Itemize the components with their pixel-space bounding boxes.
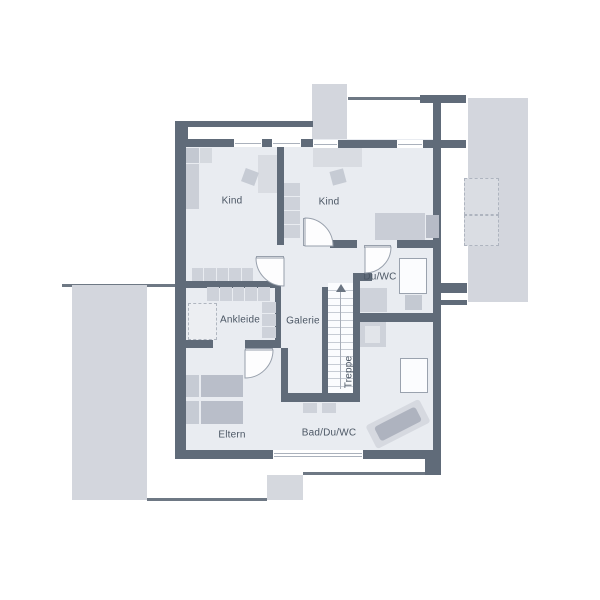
wall-divider-kids [277, 147, 284, 245]
stair-direction-arrow-icon [336, 284, 346, 292]
eltern-bed-pillow-2 [186, 401, 199, 424]
ankleide-closet-row-cell [245, 287, 257, 301]
ankleide-closet-row-cell [220, 287, 232, 301]
bad-washbasin-2 [322, 403, 336, 413]
kind1-wardrobe-top-a [186, 148, 199, 163]
kind1-closet-row-cell [229, 268, 240, 281]
stair-walkline [340, 291, 341, 389]
eltern-bed-mattress-1 [201, 375, 243, 397]
dashed-box-upper [464, 178, 499, 215]
wall-right-upper [433, 103, 441, 141]
kind2-bed-pillow [426, 215, 439, 238]
room-label-duwc: Du/WC [363, 272, 396, 283]
roof-line-bottom-left [147, 498, 267, 501]
ankleide-closet-col-cell [262, 327, 276, 338]
kind1-wardrobe-top-b [200, 148, 212, 163]
door-leaf-duwc [364, 245, 391, 248]
ankleide-closet-col-cell [262, 314, 276, 325]
wall-eltern-right [281, 348, 288, 397]
duwc-washbasin [360, 288, 387, 312]
window-top-2-pane-line [273, 143, 300, 144]
door-leaf-kind1 [256, 256, 284, 259]
door-leaf-kind2 [303, 218, 306, 246]
wall-left [175, 121, 186, 458]
kind2-desk [313, 148, 362, 167]
room-label-kind2: Kind [319, 197, 340, 208]
roof-strip-top [312, 84, 347, 141]
window-top-4-pane-line [398, 144, 422, 145]
ankleide-closet-row-cell [207, 287, 219, 301]
eltern-bed-mattress-2 [201, 401, 243, 424]
bad-shower [400, 358, 428, 393]
wall-block-top-right [420, 95, 466, 103]
window-top-3 [313, 140, 338, 148]
room-label-kind1: Kind [222, 196, 243, 207]
kind1-closet-row-cell [217, 268, 228, 281]
room-label-treppe: Treppe [344, 356, 355, 389]
kind1-closet-row-cell [192, 268, 203, 281]
kind1-closet-row-cell [242, 268, 253, 281]
kind1-desk [258, 155, 277, 193]
wall-corridor-bottom [281, 393, 360, 402]
wall-block-bottom-right [425, 459, 441, 475]
window-top-2 [272, 139, 301, 147]
kind2-wardrobe-cell [284, 197, 300, 210]
terrace-left [72, 285, 147, 500]
room-label-eltern: Eltern [218, 430, 245, 441]
roof-line-bottom-right [303, 472, 427, 475]
wall-ankleide-bottom-right [245, 340, 281, 348]
window-top-4 [397, 140, 423, 148]
room-label-galerie: Galerie [286, 316, 320, 327]
ankleide-closet-col-cell [262, 302, 276, 313]
ankleide-closet-row-cell [233, 287, 245, 301]
wall-ankleide-bottom-left [175, 340, 213, 348]
wall-right [433, 141, 441, 460]
window-top-3-pane-line [314, 144, 337, 145]
kind2-bed [375, 213, 425, 240]
wall-kind2-bottom-right [397, 240, 441, 248]
floor-plan-canvas: KindKindDu/WCAnkleideGalerieTreppeEltern… [0, 0, 600, 600]
kind2-wardrobe-cell [284, 183, 300, 196]
duwc-wc [405, 295, 422, 310]
window-bottom-pane-line [274, 456, 362, 457]
wall-stub-top-right [441, 140, 466, 148]
kind2-wardrobe-cell [284, 211, 300, 224]
dashed-box-lower [464, 215, 499, 246]
kind1-closet-row-cell [204, 268, 215, 281]
ankleide-closet-row [207, 287, 270, 301]
wall-kind2-bottom-left [330, 240, 357, 248]
ankleide-dashed-box [188, 303, 217, 340]
wall-duwc-bottom [360, 313, 441, 322]
wall-stub-right-2 [441, 300, 467, 305]
window-top-1 [234, 139, 262, 147]
terrace-bottom [267, 475, 303, 500]
kind2-wardrobe [284, 183, 300, 238]
duwc-shower [399, 258, 427, 294]
wall-outer-top [186, 121, 313, 127]
kind2-wardrobe-cell [284, 225, 300, 238]
window-bottom [273, 450, 363, 459]
ankleide-closet-col [262, 302, 276, 338]
bad-washbasin-1 [303, 403, 317, 413]
eltern-bed-pillow-1 [186, 375, 199, 397]
room-label-ankleide: Ankleide [220, 315, 260, 326]
window-top-1-pane-line [235, 143, 261, 144]
room-label-bad: Bad/Du/WC [302, 428, 357, 439]
door-leaf-eltern [245, 348, 273, 351]
kind1-wardrobe-tall [186, 164, 199, 209]
wall-stub-right-1 [441, 283, 467, 293]
wall-niche-top-left [188, 127, 312, 139]
kind1-closet-row [192, 268, 253, 281]
ankleide-closet-row-cell [258, 287, 270, 301]
window-bottom-pane-line [274, 453, 362, 454]
bad-wc-unit-inner [365, 326, 380, 343]
